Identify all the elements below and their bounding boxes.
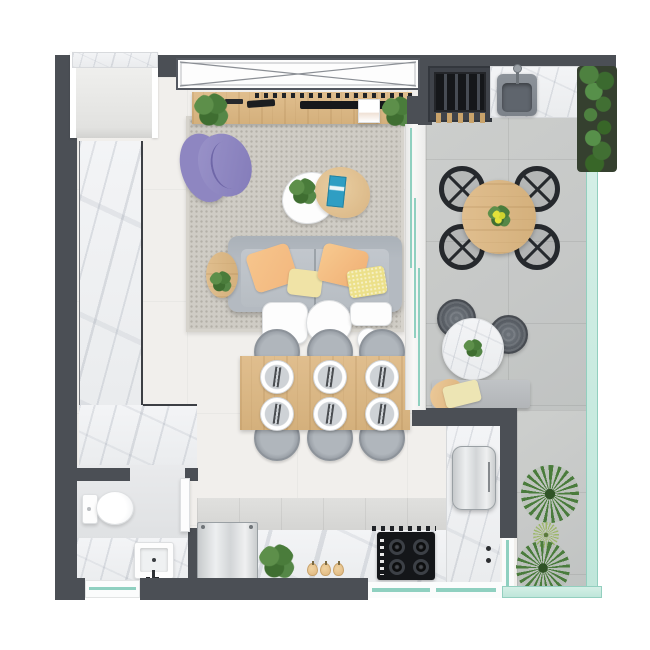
book: [326, 175, 346, 208]
floor-plan: [0, 0, 650, 650]
lounge-chair: [181, 125, 253, 207]
kitchen-plant: [258, 544, 295, 582]
bathroom-sink-drain: [152, 558, 156, 562]
counter-edge-line: [143, 404, 197, 406]
entry-alcove-sill: [72, 52, 158, 68]
kitchen-window-side-glass: [506, 540, 509, 586]
grill-grate: [434, 72, 486, 112]
vertical-garden-planter: [577, 66, 617, 172]
place-setting-1: [260, 360, 294, 394]
bistro-table-plant: [463, 339, 483, 359]
fruit-1: [307, 563, 318, 576]
grill-skewer-handles: [436, 113, 486, 123]
appliance-handle: [488, 462, 490, 492]
burner-3: [389, 559, 405, 575]
burner-4: [413, 559, 429, 575]
toilet-bowl: [96, 491, 134, 525]
console-table-square: [350, 302, 392, 326]
bathroom-door: [180, 478, 190, 532]
cooktop-knobs: [380, 539, 384, 575]
place-setting-3: [365, 360, 399, 394]
place-setting-5: [313, 397, 347, 431]
burner-2: [413, 539, 429, 555]
bathroom-window-glass: [89, 587, 136, 590]
speaker-left: [225, 99, 243, 104]
refrigerator: [197, 522, 258, 584]
kitchen-faucet-dot-2: [486, 558, 491, 563]
entry-marble-counter-return: [79, 405, 197, 468]
burner-1: [389, 539, 405, 555]
sliding-door-glass-3: [418, 268, 420, 406]
side-table-plant: [209, 271, 232, 294]
refrigerator-hinge-left: [201, 525, 205, 529]
refrigerator-hinge-right: [249, 525, 253, 529]
cooktop-vent: [372, 526, 436, 531]
entry-alcove-panel: [76, 68, 152, 138]
kitchen-wall-vertical: [500, 426, 517, 538]
coffee-table-plant: [288, 178, 317, 207]
place-setting-2: [313, 360, 347, 394]
balcony-sink-faucet-stem: [516, 72, 519, 84]
place-setting-4: [260, 397, 294, 431]
living-window: [176, 58, 420, 90]
sofa: [228, 236, 402, 312]
place-setting-6: [365, 397, 399, 431]
kitchen-window-glass-1: [372, 588, 430, 592]
kitchen-wall-horizontal: [412, 408, 517, 426]
fruit-3: [333, 563, 344, 576]
centerpiece-lemons: [492, 210, 506, 224]
wall-bottom-left: [55, 578, 85, 600]
balcony-palm-1: [521, 465, 579, 523]
kitchen-window-glass-2: [436, 588, 496, 592]
cooktop: [377, 532, 435, 580]
sliding-door-glass-1: [410, 128, 412, 268]
wall-bottom-center: [140, 578, 368, 600]
bathroom-wall-top-left: [77, 468, 130, 481]
balcony-sink-bowl: [502, 83, 532, 112]
glass-railing-right: [586, 168, 598, 598]
fruit-2: [320, 563, 331, 576]
picture-frame: [358, 99, 380, 123]
kitchen-faucet-dot-1: [486, 546, 491, 551]
toilet-tank-button: [87, 507, 91, 511]
pillow-yellow-right: [346, 265, 388, 299]
sliding-door-glass-2: [414, 198, 416, 338]
glass-railing-bottom: [502, 586, 602, 598]
entry-marble-counter: [79, 141, 143, 405]
